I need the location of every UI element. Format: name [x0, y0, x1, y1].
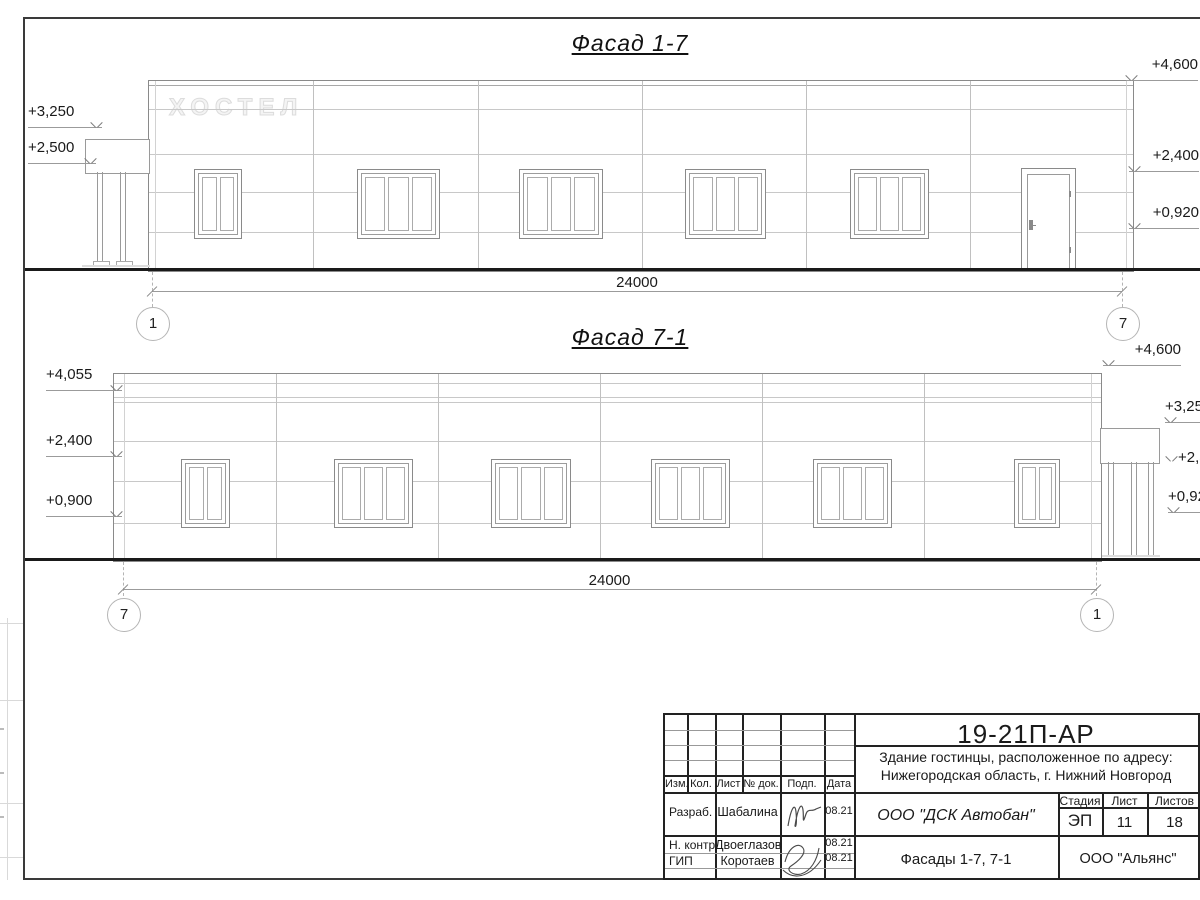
siding-line — [114, 402, 1101, 403]
elevation-mark: +2,500 — [28, 139, 96, 156]
tb-line — [665, 835, 1198, 837]
window-pane — [364, 467, 383, 520]
window-pane — [412, 177, 432, 231]
corner-trim-line — [1126, 81, 1127, 271]
elevation-mark: +3,250 — [28, 103, 102, 120]
window-pane — [499, 467, 518, 520]
siding-line — [149, 232, 1133, 233]
dimension-value: 24000 — [152, 274, 1122, 291]
canopy — [1100, 428, 1160, 464]
stage-value: ЭП — [1058, 811, 1102, 831]
elevation-value: +4,600 — [1126, 56, 1198, 73]
elevation-mark: +0,920 — [1168, 488, 1200, 505]
window-frame — [361, 173, 436, 235]
door-leaf — [1027, 174, 1070, 269]
door-hinge — [1069, 191, 1071, 197]
signature-shabalina — [782, 796, 824, 834]
project-description-line2: Нижегородская область, г. Нижний Новгоро… — [854, 767, 1198, 783]
window-pane — [527, 177, 548, 231]
canopy-post — [1131, 462, 1132, 555]
window-pane — [342, 467, 361, 520]
col-izm: Изм. — [665, 778, 687, 790]
sheet-frame-top — [23, 17, 1200, 19]
tb-line — [665, 775, 854, 777]
grid-axis-bubble: 7 — [107, 598, 141, 632]
window-frame — [185, 463, 226, 524]
window-pane — [544, 467, 563, 520]
elevation-arrow-icon — [85, 158, 96, 165]
window-frame — [198, 173, 238, 235]
elevation-value: +2,500 — [1178, 449, 1200, 466]
siding-line — [114, 383, 1101, 384]
project-description-line1: Здание гостинцы, расположенное по адресу… — [854, 749, 1198, 765]
window-pane — [858, 177, 877, 231]
window-pane — [659, 467, 678, 520]
canopy-post — [97, 172, 98, 262]
elevation-leader-line — [1103, 365, 1181, 366]
elevation-arrow-icon — [1165, 417, 1176, 424]
row-name: Шабалина — [715, 805, 780, 819]
panel-joint-line — [438, 374, 439, 561]
elevation-arrow-icon — [1129, 166, 1140, 173]
canopy-post — [1108, 462, 1109, 555]
window-frame — [689, 173, 762, 235]
panel-joint-line — [642, 81, 643, 271]
window-frame — [523, 173, 599, 235]
tb-line — [665, 868, 854, 869]
elevation-mark: +2,500 — [1166, 449, 1200, 466]
client-name: ООО "Альянс" — [1058, 851, 1198, 867]
row-date: 08.21 — [824, 805, 854, 817]
canopy-post — [1113, 462, 1114, 555]
elevation-value: +3,250 — [1165, 398, 1200, 415]
tb-line — [665, 745, 854, 746]
elevation-value: +2,400 — [1129, 147, 1199, 164]
sheets-total: 18 — [1147, 814, 1200, 831]
siding-line — [114, 523, 1101, 524]
window-frame — [495, 463, 567, 524]
siding-line — [114, 441, 1101, 442]
parapet-line — [149, 85, 1133, 86]
tb-line — [665, 730, 854, 731]
corner-trim-line — [155, 81, 156, 271]
window-frame — [655, 463, 726, 524]
row-role: Разраб. — [669, 805, 712, 819]
elevation-value: +2,500 — [28, 139, 96, 156]
canopy-post — [120, 172, 121, 262]
door-handle — [1029, 225, 1036, 226]
elevation-value: +2,400 — [46, 432, 122, 449]
dimension-value: 24000 — [123, 572, 1096, 589]
window — [813, 459, 892, 528]
sheet-title: Фасады 1-7, 7-1 — [854, 851, 1058, 868]
elevation-value: +0,920 — [1168, 488, 1200, 505]
window-pane — [365, 177, 385, 231]
elevation-arrow-icon — [1166, 456, 1177, 463]
panel-joint-line — [924, 374, 925, 561]
dimension-line — [152, 291, 1122, 292]
window-pane — [521, 467, 540, 520]
window — [194, 169, 242, 239]
margin-faint-line — [0, 700, 23, 701]
window — [850, 169, 929, 239]
window-pane — [202, 177, 217, 231]
hostel-sign: ХОСТЕЛ — [169, 94, 303, 122]
window-pane — [681, 467, 700, 520]
contractor-name: ООО "ДСК Автобан" — [854, 807, 1058, 825]
row-name: Коротаев — [715, 854, 780, 868]
col-doc: № док. — [742, 778, 780, 790]
elevation-arrow-icon — [1103, 360, 1114, 367]
col-podp: Подп. — [780, 778, 824, 790]
row-role: Н. контр. — [669, 838, 719, 852]
corner-trim-line — [1091, 374, 1092, 561]
elevation-arrow-icon — [1126, 75, 1137, 82]
tb-line — [665, 760, 854, 761]
canopy-post — [1136, 462, 1137, 555]
window — [181, 459, 230, 528]
drawing-sheet: { "titles": { "facade_1_7": "Фасад 1-7",… — [0, 0, 1200, 900]
panel-joint-line — [600, 374, 601, 561]
sheet-frame-left — [23, 17, 25, 880]
document-code: 19-21П-АР — [854, 719, 1198, 750]
window-frame — [338, 463, 409, 524]
window-pane — [386, 467, 405, 520]
window — [491, 459, 571, 528]
row-name: Двоеглазов — [715, 838, 780, 852]
window — [1014, 459, 1060, 528]
ground-line — [25, 558, 1200, 561]
window-pane — [1022, 467, 1036, 520]
door-hinge — [1069, 247, 1071, 253]
panel-joint-line — [806, 81, 807, 271]
dimension-extension-line — [1096, 562, 1097, 596]
elevation-arrow-icon — [1168, 507, 1179, 514]
sheet-label: Лист — [1102, 794, 1147, 808]
window-pane — [703, 467, 722, 520]
ground-line — [25, 268, 1200, 271]
elevation-mark: +4,055 — [46, 366, 122, 383]
sheet-number: 11 — [1102, 814, 1147, 831]
row-date: 08.21 — [824, 837, 854, 849]
margin-tick — [0, 728, 4, 730]
elevation-arrow-icon — [111, 451, 122, 458]
elevation-value: +0,900 — [46, 492, 122, 509]
window-frame — [1018, 463, 1056, 524]
elevation-mark: +0,900 — [46, 492, 122, 509]
window-pane — [1039, 467, 1053, 520]
window-pane — [821, 467, 840, 520]
signature-korotaev — [779, 836, 825, 880]
window-pane — [388, 177, 408, 231]
dimension-line — [123, 589, 1096, 590]
elevation-mark: +4,600 — [1126, 56, 1198, 73]
window-pane — [693, 177, 713, 231]
margin-faint-line — [0, 857, 23, 858]
window — [651, 459, 730, 528]
panel-joint-line — [762, 374, 763, 561]
elevation-arrow-icon — [111, 511, 122, 518]
window-pane — [843, 467, 862, 520]
window-frame — [817, 463, 888, 524]
window-pane — [574, 177, 595, 231]
facade-7-1-drawing — [113, 373, 1102, 562]
elevation-arrow-icon — [1129, 223, 1140, 230]
elevation-mark: +2,400 — [46, 432, 122, 449]
col-data: Дата — [824, 778, 854, 790]
window-pane — [716, 177, 736, 231]
canopy-pad — [1102, 555, 1160, 557]
window — [685, 169, 766, 239]
canopy-post — [102, 172, 103, 262]
margin-faint-line — [7, 618, 8, 880]
window-pane — [902, 177, 921, 231]
canopy-post — [1148, 462, 1149, 555]
window-pane — [551, 177, 572, 231]
margin-tick — [0, 816, 4, 818]
panel-joint-line — [276, 374, 277, 561]
margin-faint-line — [0, 803, 23, 804]
siding-line — [149, 192, 1133, 193]
window — [357, 169, 440, 239]
elevation-mark: +3,250 — [1165, 398, 1200, 415]
margin-faint-line — [0, 623, 23, 624]
title-block: 19-21П-АР Здание гостинцы, расположенное… — [663, 713, 1200, 880]
window-pane — [865, 467, 884, 520]
sheets-label: Листов — [1147, 794, 1200, 808]
panel-joint-line — [313, 81, 314, 271]
canopy-post — [125, 172, 126, 262]
elevation-value: +0,920 — [1129, 204, 1199, 221]
canopy-post — [1153, 462, 1154, 555]
window — [519, 169, 603, 239]
window-frame — [854, 173, 925, 235]
siding-line — [114, 481, 1101, 482]
elevation-mark: +4,600 — [1103, 341, 1181, 358]
stage-label: Стадия — [1058, 794, 1102, 808]
row-role: ГИП — [669, 854, 693, 868]
window — [334, 459, 413, 528]
elevation-arrow-icon — [91, 122, 102, 129]
canopy-pad — [82, 265, 150, 267]
elevation-mark: +0,920 — [1129, 204, 1199, 221]
window-pane — [738, 177, 758, 231]
grid-axis-bubble: 1 — [1080, 598, 1114, 632]
facade-1-7-drawing: ХОСТЕЛ — [148, 80, 1134, 272]
entrance-door — [1021, 168, 1076, 272]
col-list: Лист — [715, 778, 742, 790]
elevation-value: +4,600 — [1103, 341, 1181, 358]
facade-1-7-title: Фасад 1-7 — [510, 30, 750, 57]
elevation-value: +4,055 — [46, 366, 122, 383]
grid-axis-bubble: 7 — [1106, 307, 1140, 341]
elevation-value: +3,250 — [28, 103, 102, 120]
panel-joint-line — [970, 81, 971, 271]
elevation-mark: +2,400 — [1129, 147, 1199, 164]
margin-tick — [0, 772, 4, 774]
grid-axis-bubble: 1 — [136, 307, 170, 341]
window-pane — [880, 177, 899, 231]
siding-line — [149, 154, 1133, 155]
window-pane — [220, 177, 235, 231]
facade-7-1-title: Фасад 7-1 — [510, 324, 750, 351]
window-pane — [189, 467, 204, 520]
row-date: 08.21 — [824, 852, 854, 864]
corner-trim-line — [124, 374, 125, 561]
elevation-arrow-icon — [111, 385, 122, 392]
col-kol: Кол. — [687, 778, 715, 790]
window-pane — [207, 467, 222, 520]
panel-joint-line — [478, 81, 479, 271]
siding-line — [114, 397, 1101, 398]
siding-line — [149, 109, 1133, 110]
